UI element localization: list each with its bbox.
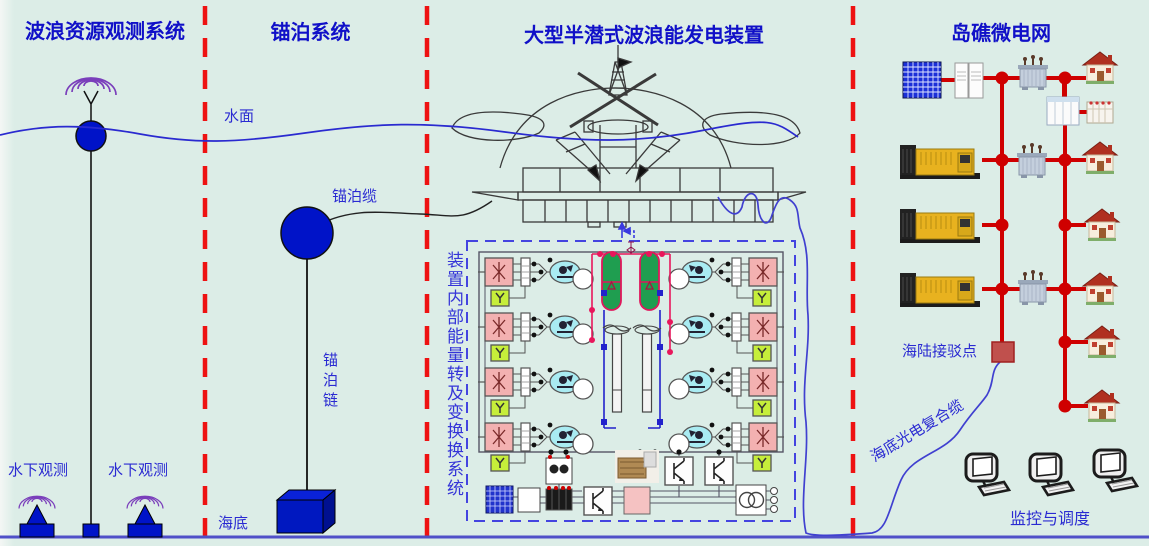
diagram-canvas: 波浪资源观测系统 锚泊系统 大型半潜式波浪能发电装置 岛礁微电网 水面 锚泊缆 … bbox=[0, 0, 1149, 546]
mooring-buoy-icon bbox=[281, 207, 333, 259]
energy-conversion-schematic bbox=[467, 223, 795, 521]
underwater-sensor-icon bbox=[127, 496, 163, 537]
monitoring-computer-icon bbox=[966, 454, 1009, 495]
house-icon bbox=[1085, 209, 1119, 241]
diesel-generator-icon bbox=[900, 145, 980, 179]
wifi-signal-icon bbox=[66, 78, 116, 95]
house-icon bbox=[1083, 142, 1117, 174]
section-title-wave-observation: 波浪资源观测系统 bbox=[14, 15, 196, 44]
transformer-icon bbox=[1018, 55, 1048, 90]
section-title-microgrid: 岛礁微电网 bbox=[940, 17, 1062, 46]
pink-module-icon bbox=[624, 487, 650, 514]
solar-panel-small-icon bbox=[486, 486, 513, 513]
diesel-generator-icon bbox=[900, 209, 980, 243]
transformer-icon bbox=[1017, 143, 1047, 178]
section-title-wave-device: 大型半潜式波浪能发电装置 bbox=[508, 19, 780, 48]
accumulator-group bbox=[589, 242, 673, 428]
house-icon bbox=[1083, 273, 1117, 305]
water-surface-line bbox=[0, 122, 798, 141]
battery-storage-icon bbox=[1087, 101, 1113, 123]
accumulator-icon bbox=[640, 252, 659, 310]
hydraulic-motor-icon bbox=[546, 458, 572, 484]
schematic-electrical-row bbox=[486, 449, 778, 515]
label-underwater-observation-2: 水下观测 bbox=[108, 459, 168, 480]
label-water-surface: 水面 bbox=[224, 105, 254, 126]
accumulator-icon bbox=[602, 252, 621, 310]
label-sea-land-connection-point: 海陆接驳点 bbox=[902, 340, 977, 361]
house-icon bbox=[1083, 52, 1117, 84]
label-seabed: 海底 bbox=[218, 512, 248, 533]
house-icon bbox=[1085, 326, 1119, 358]
inverter-icon bbox=[584, 487, 612, 515]
generator-photo-icon bbox=[615, 450, 659, 483]
underwater-sensor-icon bbox=[19, 496, 55, 537]
inverter-cabinet-icon bbox=[955, 63, 983, 98]
label-device-internal-system: 装置内部能量转及变换换系统 bbox=[441, 251, 466, 523]
label-mooring-chain: 锚泊链 bbox=[320, 352, 341, 428]
anchor-block-icon bbox=[277, 490, 335, 533]
label-monitoring-dispatch: 监控与调度 bbox=[1010, 505, 1090, 529]
monitoring-computer-icon bbox=[1030, 454, 1073, 495]
transformer-icon bbox=[1018, 270, 1048, 305]
control-cabinet-icon bbox=[1047, 97, 1079, 125]
submarine-cable-line bbox=[718, 194, 1000, 536]
house-icon bbox=[1085, 390, 1119, 422]
label-mooring-cable: 锚泊缆 bbox=[332, 185, 377, 206]
wave-energy-ship-illustration bbox=[452, 45, 806, 227]
turbine-cylinder-icon bbox=[633, 325, 661, 412]
control-box-icon bbox=[518, 488, 540, 512]
sea-land-connection-point-icon bbox=[992, 342, 1014, 362]
transformer-symbol-icon bbox=[736, 485, 766, 515]
battery-bank-icon bbox=[546, 486, 572, 510]
section-title-mooring: 锚泊系统 bbox=[258, 16, 363, 45]
label-underwater-observation-1: 水下观测 bbox=[8, 459, 68, 480]
converter-icon bbox=[705, 457, 733, 485]
turbine-cylinder-icon bbox=[603, 325, 631, 412]
converter-icon bbox=[665, 457, 693, 485]
solar-panel-icon bbox=[903, 62, 941, 98]
diesel-generator-icon bbox=[900, 273, 980, 307]
diagram-graphics bbox=[0, 0, 1149, 546]
monitoring-computer-icon bbox=[1094, 450, 1137, 491]
